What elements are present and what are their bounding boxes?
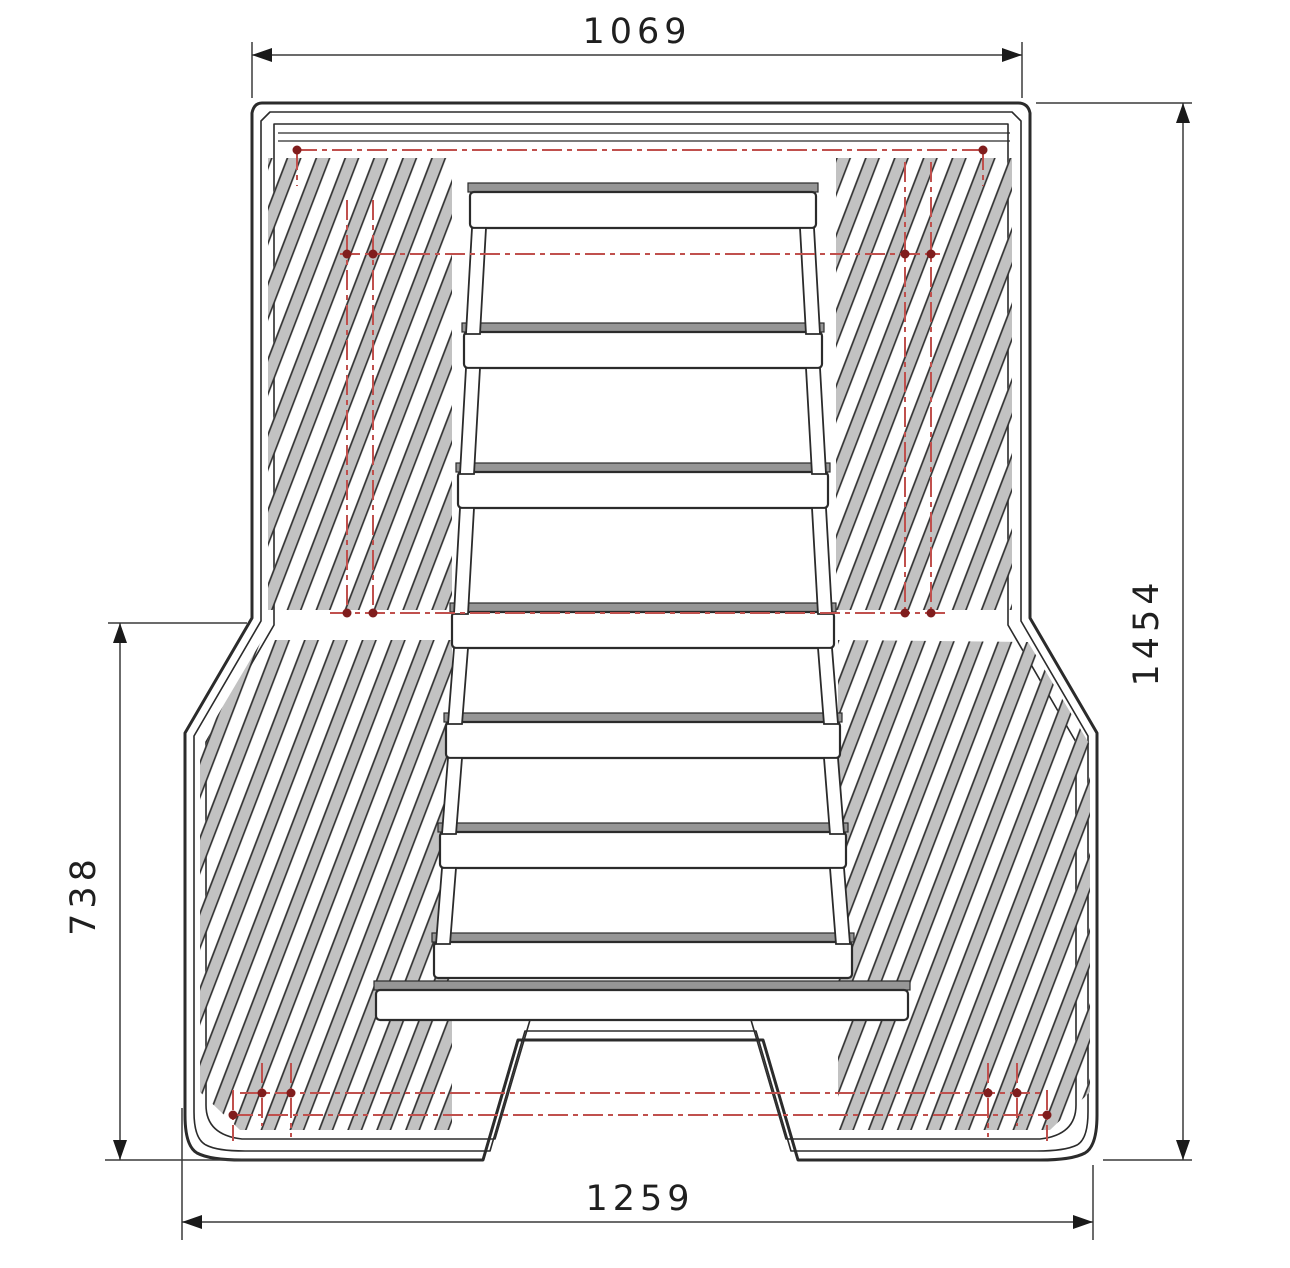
step-slat bbox=[434, 942, 852, 978]
drawing-canvas: 1069 1454 738 1259 bbox=[0, 0, 1290, 1268]
step-slat bbox=[458, 472, 828, 508]
technical-drawing: 1069 1454 738 1259 bbox=[0, 0, 1290, 1268]
rib-field-bottom-right bbox=[838, 640, 1090, 1130]
rib-field-top-left bbox=[268, 158, 452, 610]
step-slat bbox=[470, 192, 816, 228]
step-slat bbox=[464, 332, 822, 368]
center-ladder bbox=[374, 183, 910, 1020]
step-slat bbox=[452, 612, 834, 648]
rib-field-bottom-left bbox=[200, 640, 452, 1130]
rib-field-top-right bbox=[836, 158, 1012, 610]
step-slat bbox=[376, 990, 908, 1020]
step-slat bbox=[440, 832, 846, 868]
dim-label-lower-height: 738 bbox=[64, 854, 104, 936]
dim-label-overall-height: 1454 bbox=[1127, 577, 1167, 686]
dim-label-bottom-width: 1259 bbox=[585, 1179, 694, 1219]
step-slat bbox=[446, 722, 840, 758]
dim-label-top-width: 1069 bbox=[582, 12, 691, 52]
